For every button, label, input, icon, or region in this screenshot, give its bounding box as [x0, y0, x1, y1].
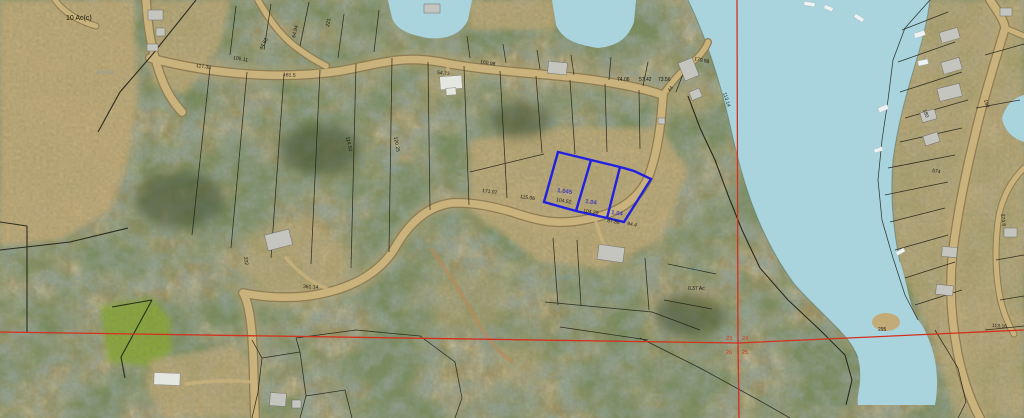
parcel-id-label: 1.035 — [684, 267, 700, 273]
dimension-label: 113.16 — [992, 323, 1007, 330]
region-labels: 10 Ac(c) — [66, 15, 92, 22]
section-number-label: 25 — [742, 350, 748, 356]
dimension-label: 161.5 — [283, 72, 296, 79]
dimension-label: 74.06 — [617, 77, 630, 83]
parcel-map-canvas[interactable]: 10 Ac(c) 105.11117.38161.544.8364.942215… — [0, 0, 1024, 418]
parcel-id-label: 1.042 — [557, 275, 573, 281]
section-number-label: 24 — [742, 336, 748, 342]
section-number-label: 23 — [726, 336, 732, 342]
parcel-id-label: 10.081 — [96, 70, 115, 76]
dimension-label: 295 — [878, 327, 887, 333]
dimension-label: 361.14 — [303, 284, 319, 291]
acreage-region-label: 10 Ac(c) — [66, 15, 92, 22]
dimension-label: 0.37 Ac — [688, 286, 705, 292]
parcel-id-label: 1.02 — [390, 167, 402, 173]
dimension-label: 73.56 — [658, 77, 671, 83]
map-viewport[interactable]: 10 Ac(c) 105.11117.38161.544.8364.942215… — [0, 0, 1024, 418]
section-number-label: 26 — [726, 350, 732, 356]
dimension-label: 332 — [242, 256, 249, 265]
dimension-label: 57.42 — [639, 77, 652, 83]
